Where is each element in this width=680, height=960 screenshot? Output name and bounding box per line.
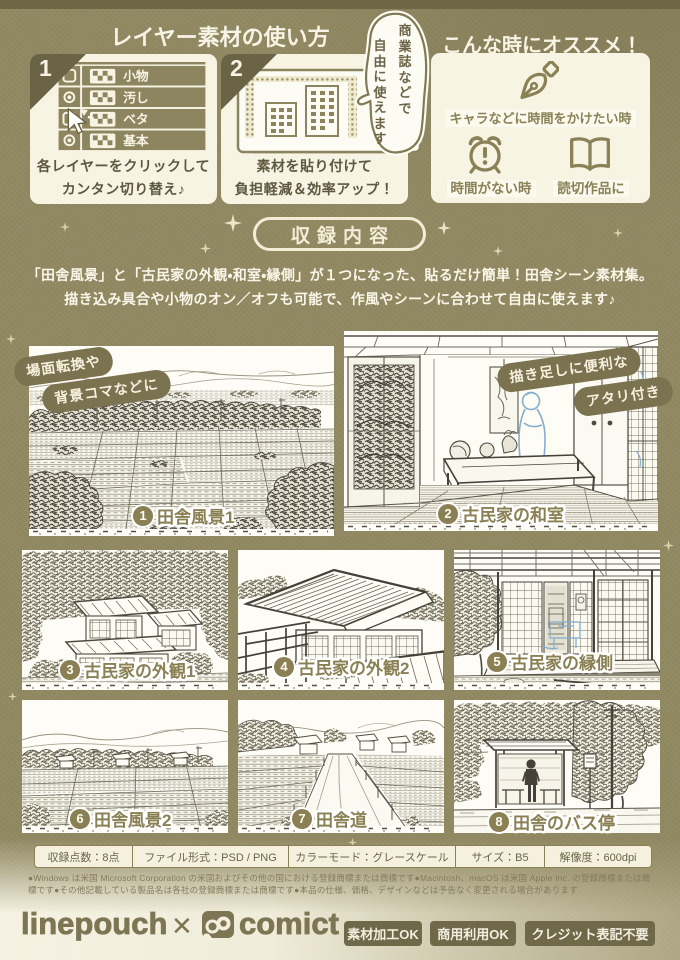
svg-text:ベタ: ベタ	[123, 112, 148, 127]
svg-text:汚し: 汚し	[123, 90, 148, 105]
svg-text:小物: 小物	[123, 69, 149, 84]
svg-text:基本: 基本	[122, 133, 149, 148]
